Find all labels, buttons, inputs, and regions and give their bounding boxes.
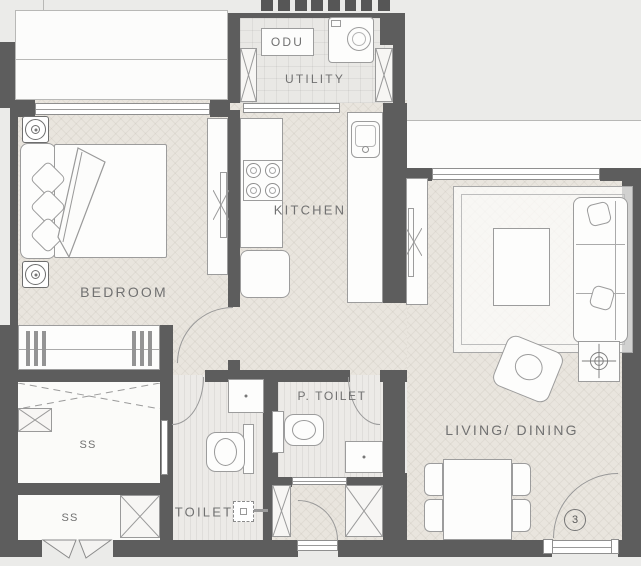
hanger-icon <box>42 331 46 366</box>
chajja-top-left <box>15 10 228 100</box>
washbasin-icon <box>345 441 383 473</box>
shaft-hatch <box>345 485 383 537</box>
p-toilet-label: P. TOILET <box>297 389 366 403</box>
dining-table <box>443 459 512 540</box>
hanger-icon <box>132 331 136 366</box>
wall <box>18 483 160 495</box>
ceiling-point-icon <box>22 116 49 143</box>
wardrobe <box>18 325 160 370</box>
coffee-table <box>493 228 550 306</box>
chajja-boundary-tick <box>43 0 44 10</box>
shower-arm <box>254 509 268 512</box>
wall <box>228 13 240 103</box>
ss-upper-label: SS <box>79 439 96 451</box>
toilet-label: TOILET <box>175 505 233 520</box>
refrigerator-icon <box>240 250 290 298</box>
living-window <box>432 168 600 180</box>
faucet <box>362 146 369 153</box>
louver-vent-icon <box>261 0 273 11</box>
wall <box>0 42 15 108</box>
wardrobe-rail <box>19 349 159 350</box>
wall <box>18 540 42 557</box>
louver-vent-icon <box>311 0 323 11</box>
bedroom-label: BEDROOM <box>80 284 168 300</box>
lamp-side-table <box>578 341 620 382</box>
dining-chair <box>512 499 531 532</box>
ss-dashed-cross <box>18 383 160 409</box>
shaft-hatch <box>120 495 160 538</box>
wall <box>0 325 18 557</box>
wc-icon <box>206 432 245 472</box>
bedroom-window <box>35 103 210 115</box>
odu-unit: ODU <box>261 28 314 56</box>
kitchen-label: KITCHEN <box>274 203 346 218</box>
door-jamb <box>543 539 553 554</box>
shaft-hatch <box>18 408 52 432</box>
hanger-icon <box>26 331 30 366</box>
floor-plan: ODU <box>0 0 641 566</box>
wc-cistern <box>272 411 284 453</box>
kitchen-sink-icon <box>351 121 380 158</box>
tv-mark <box>213 190 229 220</box>
washer-control <box>331 20 341 27</box>
chajja-top-right <box>405 120 641 168</box>
p-toilet-window <box>292 477 347 485</box>
wall <box>10 100 18 325</box>
wc-icon <box>284 414 324 446</box>
service-threshold <box>297 540 338 551</box>
hanger-icon <box>148 331 152 366</box>
wall <box>228 110 240 307</box>
utility-label: UTILITY <box>285 72 345 86</box>
shower-icon <box>233 501 254 522</box>
louver-vent-icon <box>345 0 356 11</box>
hanger-icon <box>140 331 144 366</box>
ceiling-point-icon <box>22 261 49 288</box>
floor-lamp-icon <box>579 342 619 381</box>
wall <box>18 370 163 382</box>
entry-door-number: 3 <box>572 514 578 526</box>
hob-icon <box>243 160 283 201</box>
shaft-hatch <box>272 485 291 537</box>
entrance-threshold <box>552 540 612 554</box>
utility-ledge-hatch <box>375 48 393 102</box>
dining-chair <box>424 463 443 496</box>
wall <box>380 13 405 45</box>
louver-door-icon <box>40 539 115 560</box>
wall <box>618 540 641 557</box>
louver-vent-icon <box>295 0 307 11</box>
entry-door-number-badge: 3 <box>564 509 586 531</box>
wall <box>393 45 405 103</box>
door-jamb <box>611 539 619 554</box>
blanket-icon <box>55 145 111 260</box>
hanger-icon <box>34 331 38 366</box>
utility-ledge-hatch <box>240 48 257 102</box>
tv-mark <box>406 228 422 256</box>
louver-vent-icon <box>361 0 372 11</box>
living-dining-label: LIVING/ DINING <box>445 422 578 438</box>
ss-lower-label: SS <box>61 512 78 524</box>
wall <box>407 540 552 557</box>
wall <box>210 100 230 117</box>
armchair-cushion-icon <box>511 350 547 385</box>
wall <box>600 168 622 181</box>
wall <box>338 540 407 557</box>
wall <box>263 480 272 557</box>
chajja-edge-line <box>16 59 227 60</box>
washbasin-icon <box>228 379 264 413</box>
louver-vent-icon <box>378 0 390 11</box>
odu-label: ODU <box>271 35 304 49</box>
washer-door <box>347 27 371 51</box>
dining-chair <box>424 499 443 532</box>
dining-chair <box>512 463 531 496</box>
wall <box>205 370 350 382</box>
ss-access-panel <box>161 420 168 475</box>
kitchen-window <box>243 103 340 113</box>
wall <box>228 13 405 18</box>
louver-vent-icon <box>278 0 290 11</box>
washing-machine-icon <box>328 17 374 63</box>
louver-vent-icon <box>328 0 340 11</box>
wall <box>383 370 405 480</box>
wall <box>383 103 407 303</box>
